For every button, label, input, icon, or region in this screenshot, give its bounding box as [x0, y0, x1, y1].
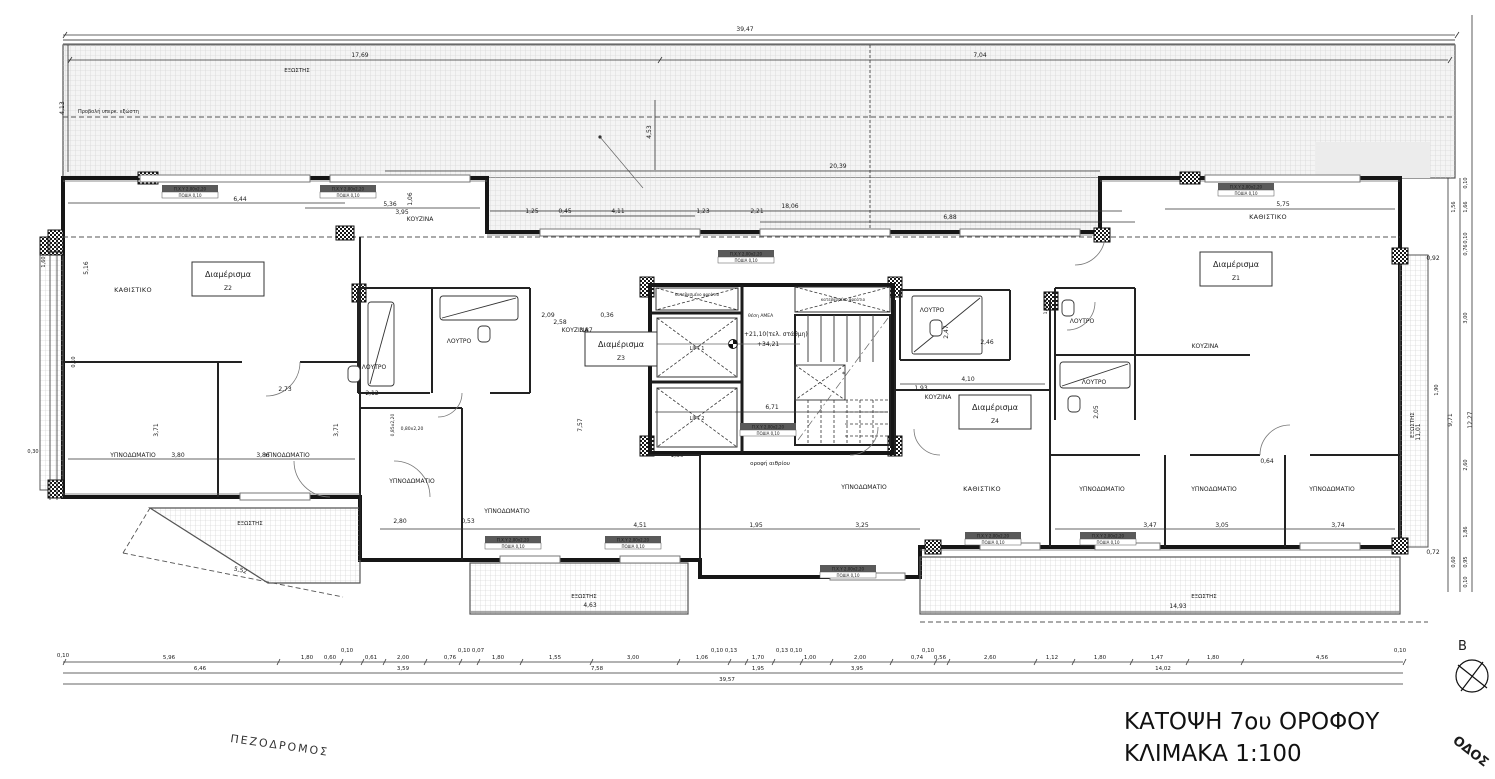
dim-mid-band: 20,39: [829, 163, 846, 170]
svg-text:1,95: 1,95: [752, 666, 765, 672]
svg-text:2,60: 2,60: [1463, 459, 1469, 470]
svg-text:3,00: 3,00: [1463, 312, 1469, 323]
svg-text:3,95: 3,95: [851, 666, 864, 672]
bedroom-6: ΥΠΝΟΔΩΜΑΤΙΟ: [1078, 486, 1125, 493]
svg-text:2,09: 2,09: [541, 312, 555, 319]
svg-text:1,47: 1,47: [1151, 655, 1164, 661]
svg-text:1,56: 1,56: [1451, 201, 1457, 212]
bedroom-7: ΥΠΝΟΔΩΜΑΤΙΟ: [1190, 486, 1237, 493]
svg-text:Π.Χ.Υ 2,00x2,20: Π.Χ.Υ 2,00x2,20: [1230, 184, 1263, 189]
svg-text:Π.Χ.Υ 2,00x2,20: Π.Χ.Υ 2,00x2,20: [832, 566, 865, 571]
svg-text:Διαμέρισμα: Διαμέρισμα: [205, 269, 251, 279]
svg-text:2,58: 2,58: [553, 319, 567, 326]
svg-text:2,21: 2,21: [750, 208, 764, 215]
svg-text:2,00: 2,00: [854, 655, 867, 661]
drawing-scale: ΚΛΙΜΑΚΑ 1:100: [1124, 741, 1302, 767]
svg-text:0,76: 0,76: [444, 655, 457, 661]
bath-5: ΛΟΥΤΡΟ: [1082, 379, 1107, 386]
svg-text:6,46: 6,46: [194, 666, 207, 672]
svg-text:0,45: 0,45: [558, 208, 572, 215]
svg-text:1,80: 1,80: [1207, 655, 1220, 661]
lift1-label: LIFT 1: [690, 346, 705, 352]
stair: *: [795, 315, 890, 445]
svg-text:4,56: 4,56: [1316, 655, 1329, 661]
bath-4: ΛΟΥΤΡΟ: [1070, 318, 1095, 325]
bottom-total: 39,57: [719, 677, 735, 683]
svg-text:2,80: 2,80: [393, 518, 407, 525]
svg-text:18,06: 18,06: [781, 203, 798, 210]
svg-text:3,87: 3,87: [579, 327, 593, 334]
amea-label: θέση ΑΜΕΑ: [748, 312, 774, 319]
svg-text:0,10: 0,10: [1394, 648, 1407, 654]
bath-1: ΛΟΥΤΡΟ: [362, 364, 387, 371]
svg-text:0,30: 0,30: [27, 449, 38, 455]
svg-text:0,36: 0,36: [600, 312, 614, 319]
svg-text:Z3: Z3: [617, 355, 625, 362]
svg-text:2,12: 2,12: [365, 390, 379, 397]
floor-plan-page: ΕΞΩΣΤΗΣ Προβολή υπερκ. εξώστη 39,47 17,6…: [0, 0, 1495, 779]
svg-text:1,00: 1,00: [804, 655, 817, 661]
svg-text:ΠΟΔΙΑ 0,10: ΠΟΔΙΑ 0,10: [1097, 540, 1120, 545]
dim-top-total: 39,47: [736, 26, 753, 33]
svg-text:0,10: 0,10: [1463, 232, 1469, 243]
svg-text:3,71: 3,71: [153, 423, 160, 437]
svg-text:Π.Χ.Υ 2,00x2,20: Π.Χ.Υ 2,00x2,20: [174, 186, 207, 191]
svg-text:1,25: 1,25: [525, 208, 539, 215]
svg-text:0,92: 0,92: [1426, 255, 1440, 262]
living-2: ΚΑΘΙΣΤΙΚΟ: [963, 485, 1001, 493]
svg-text:4,10: 4,10: [961, 376, 975, 383]
svg-text:3,47: 3,47: [1143, 522, 1157, 529]
svg-text:ΠΟΔΙΑ 0,10: ΠΟΔΙΑ 0,10: [837, 573, 860, 578]
shaft-label-right: κατεβασμένο φρεάτιο: [821, 297, 866, 302]
svg-text:Π.Χ.Υ 2,00x2,20: Π.Χ.Υ 2,00x2,20: [752, 424, 785, 429]
svg-text:ΠΟΔΙΑ 0,10: ΠΟΔΙΑ 0,10: [735, 258, 758, 263]
svg-text:4,51: 4,51: [633, 522, 647, 529]
balcony-bottom-center: [470, 563, 688, 614]
apartment-label-z4: ΔιαμέρισμαZ4: [959, 395, 1031, 429]
dim-v-left: 4,13: [59, 101, 66, 115]
balcony-label-br: ΕΞΩΣΤΗΣ: [1191, 594, 1217, 600]
svg-text:2,05: 2,05: [1093, 405, 1100, 419]
living-1: ΚΑΘΙΣΤΙΚΟ: [114, 286, 152, 294]
road-label: ΟΔΟΣ: [1450, 733, 1492, 770]
drawing-title: ΚΑΤΟΨΗ 7ου ΟΡΟΦΟΥ: [1124, 709, 1380, 735]
kitchen-1: ΚΟΥΖΙΝΑ: [407, 216, 435, 223]
svg-text:Z4: Z4: [991, 418, 999, 425]
apartment-label-z3: ΔιαμέρισμαZ3: [585, 332, 657, 366]
svg-text:1,23: 1,23: [696, 208, 710, 215]
svg-text:0,56: 0,56: [934, 655, 947, 661]
svg-text:ΠΟΔΙΑ 0,10: ΠΟΔΙΑ 0,10: [622, 544, 645, 549]
svg-text:0,10: 0,10: [71, 356, 77, 367]
bath-2: ΛΟΥΤΡΟ: [447, 338, 472, 345]
dim-top-left: 17,69: [351, 52, 368, 59]
svg-text:11,01: 11,01: [1415, 423, 1422, 440]
dim-bc: 4,63: [583, 602, 597, 609]
north-symbol: B: [1456, 639, 1488, 692]
bedroom-1: ΥΠΝΟΔΩΜΑΤΙΟ: [109, 452, 156, 459]
svg-text:0,60: 0,60: [324, 655, 337, 661]
bedroom-4: ΥΠΝΟΔΩΜΑΤΙΟ: [483, 508, 530, 515]
svg-text:0,10: 0,10: [458, 648, 471, 654]
svg-text:0,10: 0,10: [57, 653, 70, 659]
svg-text:0,61: 0,61: [365, 655, 377, 661]
level-bottom: +34,21: [757, 341, 779, 348]
bedroom-5: ΥΠΝΟΔΩΜΑΤΙΟ: [840, 484, 887, 491]
svg-text:ΠΟΔΙΑ 0,10: ΠΟΔΙΑ 0,10: [337, 193, 360, 198]
svg-text:Διαμέρισμα: Διαμέρισμα: [1213, 259, 1259, 269]
svg-text:Διαμέρισμα: Διαμέρισμα: [972, 402, 1018, 412]
svg-text:0,13: 0,13: [776, 648, 789, 654]
core: κατεβασμένο φρεάτιο LIFT 1 LIFT 2 κατεβα…: [650, 285, 893, 467]
svg-text:1,90: 1,90: [1434, 384, 1440, 395]
bedroom-3: ΥΠΝΟΔΩΜΑΤΙΟ: [388, 478, 435, 485]
svg-text:3,71: 3,71: [333, 423, 340, 437]
door-size-3: 0,80x2,20: [401, 426, 424, 432]
dim-top-right: 7,04: [973, 52, 987, 59]
bath-3: ΛΟΥΤΡΟ: [920, 307, 945, 314]
svg-text:0,53: 0,53: [461, 518, 475, 525]
apartment-label-z1: ΔιαμέρισμαZ1: [1200, 252, 1272, 286]
svg-text:0,74: 0,74: [911, 655, 924, 661]
floor-plan-canvas: ΕΞΩΣΤΗΣ Προβολή υπερκ. εξώστη 39,47 17,6…: [0, 0, 1495, 779]
svg-text:0,13: 0,13: [725, 648, 738, 654]
svg-text:3,86: 3,86: [256, 452, 270, 459]
pedestrian-street-label: ΠΕΖΟΔΡΟΜΟΣ: [230, 732, 330, 759]
svg-text:6,88: 6,88: [943, 214, 957, 221]
living-3: ΚΑΘΙΣΤΙΚΟ: [1249, 213, 1287, 221]
north-b-label: B: [1458, 639, 1467, 654]
svg-text:5,75: 5,75: [1276, 201, 1290, 208]
svg-text:2,73: 2,73: [278, 386, 292, 393]
doors: [266, 235, 1290, 497]
shaft-label-left: κατεβασμένο φρεάτιο: [675, 292, 720, 297]
title-block: ΚΑΤΟΨΗ 7ου ΟΡΟΦΟΥ ΚΛΙΜΑΚΑ 1:100: [1124, 709, 1380, 767]
svg-text:5,36: 5,36: [383, 201, 397, 208]
svg-text:ΠΟΔΙΑ 0,10: ΠΟΔΙΑ 0,10: [982, 540, 1005, 545]
kitchen-4: ΚΟΥΖΙΝΑ: [1192, 343, 1220, 350]
svg-text:Π.Χ.Υ 2,00x2,20: Π.Χ.Υ 2,00x2,20: [730, 251, 763, 256]
svg-text:1,66: 1,66: [1463, 201, 1469, 212]
svg-text:2,00: 2,00: [397, 655, 410, 661]
svg-text:6,44: 6,44: [233, 196, 247, 203]
svg-text:2,47: 2,47: [943, 325, 950, 339]
svg-text:5,16: 5,16: [83, 261, 90, 275]
svg-text:3,59: 3,59: [397, 666, 410, 672]
svg-text:Π.Χ.Υ 2,00x2,20: Π.Χ.Υ 2,00x2,20: [977, 533, 1010, 538]
dim-v-mid: 4,53: [646, 125, 653, 139]
svg-text:Διαμέρισμα: Διαμέρισμα: [598, 339, 644, 349]
svg-text:3,00: 3,00: [627, 655, 640, 661]
svg-text:1,80: 1,80: [301, 655, 314, 661]
svg-text:0,07: 0,07: [472, 648, 485, 654]
svg-text:0,10: 0,10: [1463, 177, 1469, 188]
lift2-label: LIFT 2: [690, 416, 705, 422]
svg-text:*: *: [842, 371, 845, 378]
svg-text:Π.Χ.Υ 2,00x2,20: Π.Χ.Υ 2,00x2,20: [1092, 533, 1125, 538]
svg-text:Π.Χ.Υ 2,00x2,20: Π.Χ.Υ 2,00x2,20: [617, 537, 650, 542]
svg-text:7,57: 7,57: [577, 418, 584, 432]
svg-text:0,76: 0,76: [1463, 244, 1469, 255]
projection-note: Προβολή υπερκ. εξώστη: [78, 108, 139, 115]
svg-text:0,60: 0,60: [1451, 556, 1457, 567]
svg-text:3,05: 3,05: [1215, 522, 1229, 529]
balcony-label-bl: ΕΞΩΣΤΗΣ: [237, 521, 263, 527]
balcony-label-top: ΕΞΩΣΤΗΣ: [284, 68, 310, 74]
svg-text:3,95: 3,95: [395, 209, 409, 216]
svg-text:0,10: 0,10: [790, 648, 803, 654]
svg-text:Z2: Z2: [224, 285, 232, 292]
svg-text:1,80: 1,80: [1094, 655, 1107, 661]
svg-text:0,64: 0,64: [1260, 458, 1274, 465]
svg-text:0,10: 0,10: [922, 648, 935, 654]
apartment-label-z2: ΔιαμέρισμαZ2: [192, 262, 264, 296]
svg-text:1,93: 1,93: [914, 385, 928, 392]
road-name: ΟΔΟΣ: [1450, 733, 1492, 770]
svg-text:1,95: 1,95: [749, 522, 763, 529]
balcony-bottom-left: [150, 508, 360, 583]
svg-text:12,27: 12,27: [1467, 411, 1474, 428]
svg-text:0,95: 0,95: [1463, 556, 1469, 567]
svg-text:1,86: 1,86: [1463, 526, 1469, 537]
balcony-bottom-right: [920, 557, 1400, 614]
kitchen-3: ΚΟΥΖΙΝΑ: [925, 394, 953, 401]
svg-text:4,11: 4,11: [611, 208, 625, 215]
door-size-1: 0,85x2,20: [390, 414, 396, 437]
svg-text:1,06: 1,06: [407, 192, 414, 206]
svg-text:0,10: 0,10: [1463, 576, 1469, 587]
dim-br: 14,93: [1169, 603, 1186, 610]
core-width: 6,71: [765, 404, 779, 411]
svg-text:14,02: 14,02: [1155, 666, 1171, 672]
svg-text:1,12: 1,12: [1046, 655, 1058, 661]
svg-text:1,06: 1,06: [696, 655, 709, 661]
bedroom-8: ΥΠΝΟΔΩΜΑΤΙΟ: [1308, 486, 1355, 493]
svg-text:2,60: 2,60: [984, 655, 997, 661]
svg-text:ΠΟΔΙΑ 0,10: ΠΟΔΙΑ 0,10: [757, 431, 780, 436]
svg-text:0,10: 0,10: [711, 648, 724, 654]
svg-text:1,70: 1,70: [752, 655, 765, 661]
svg-text:Π.Χ.Υ 2,00x2,20: Π.Χ.Υ 2,00x2,20: [332, 186, 365, 191]
bedroom-2: ΥΠΝΟΔΩΜΑΤΙΟ: [263, 452, 310, 459]
svg-text:3,25: 3,25: [855, 522, 869, 529]
svg-text:5,96: 5,96: [163, 655, 176, 661]
svg-text:2,46: 2,46: [980, 339, 994, 346]
svg-text:1,55: 1,55: [549, 655, 562, 661]
svg-text:7,58: 7,58: [591, 666, 604, 672]
svg-text:3,80: 3,80: [171, 452, 185, 459]
svg-text:1,60: 1,60: [41, 256, 47, 267]
atrium-label: οροφή αιθρίου: [750, 460, 790, 467]
svg-text:ΠΟΔΙΑ 0,10: ΠΟΔΙΑ 0,10: [502, 544, 525, 549]
svg-text:3,74: 3,74: [1331, 522, 1345, 529]
svg-text:0,10: 0,10: [341, 648, 354, 654]
svg-text:1,80: 1,80: [492, 655, 505, 661]
svg-text:ΠΟΔΙΑ 0,10: ΠΟΔΙΑ 0,10: [179, 193, 202, 198]
svg-text:0,72: 0,72: [1426, 549, 1440, 556]
street-label: ΠΕΖΟΔΡΟΜΟΣ: [230, 732, 330, 759]
svg-text:Π.Χ.Υ 2,00x2,20: Π.Χ.Υ 2,00x2,20: [497, 537, 530, 542]
bottom-dimensions: 0,10 5,96 1,80 0,60 0,10 0,61 2,00 0,76 …: [57, 648, 1407, 684]
level-top: +21,10(τελ. στάθμη): [744, 331, 808, 338]
svg-text:ΠΟΔΙΑ 0,10: ΠΟΔΙΑ 0,10: [1235, 191, 1258, 196]
svg-text:Z1: Z1: [1232, 275, 1240, 282]
balcony-label-bc: ΕΞΩΣΤΗΣ: [571, 594, 597, 600]
door-size-2: 1,00x2,20: [1043, 292, 1049, 315]
